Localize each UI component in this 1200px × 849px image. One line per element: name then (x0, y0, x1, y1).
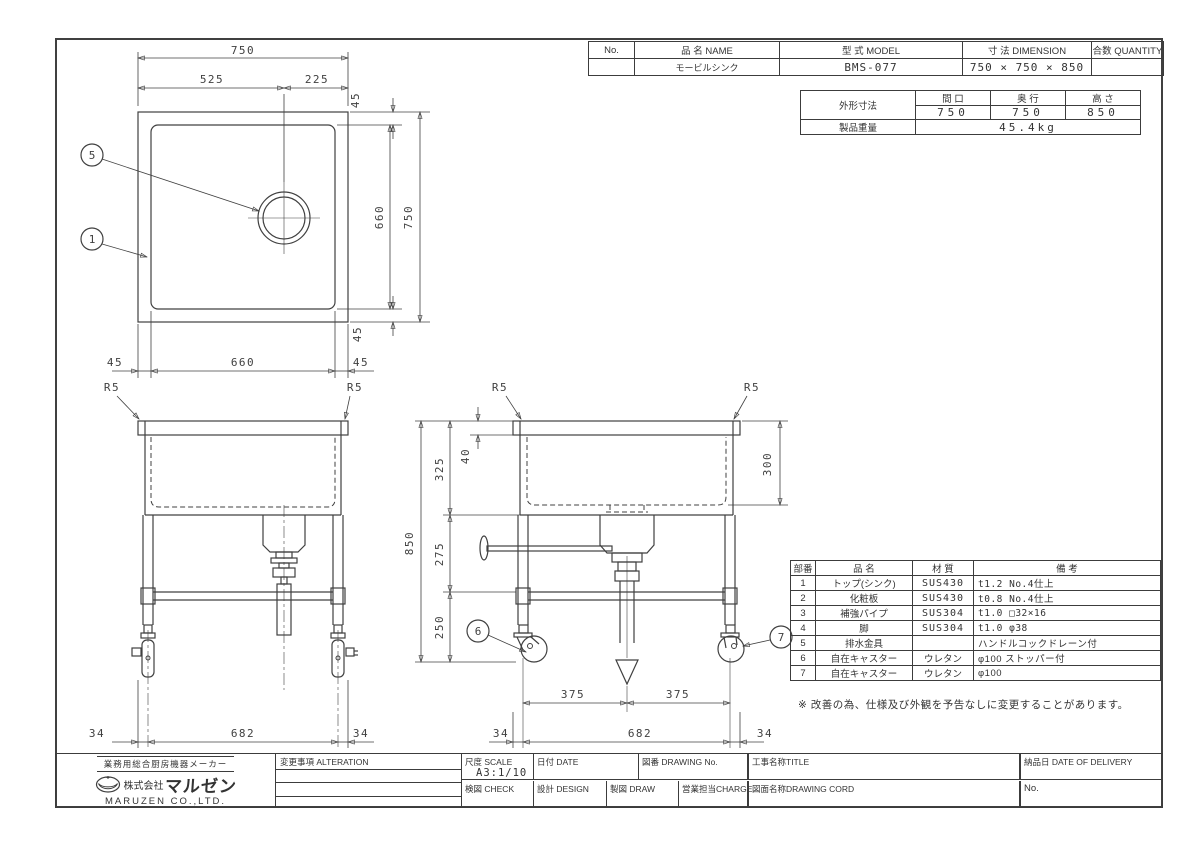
part-no: 6 (791, 651, 816, 666)
header-col-dimension: 寸 法 DIMENSION (963, 42, 1092, 59)
dim-plan-width-left: 525 (200, 73, 224, 86)
front-view: 34 682 34 R5 R5 (89, 381, 374, 748)
part-material: SUS304 (913, 621, 974, 636)
dim-plan-width-total: 750 (231, 44, 255, 57)
caster-right-wheel (718, 636, 744, 662)
company-name-en: MARUZEN CO.,LTD. (56, 796, 275, 807)
design-label: 設計 DESIGN (537, 783, 589, 795)
part-no: 7 (791, 666, 816, 681)
parts-row: 7 自在キャスター ウレタン φ100 (791, 666, 1161, 681)
company-logotype: マルゼン (164, 772, 238, 797)
drawing-cord-label: 図面名称DRAWING CORD (752, 783, 854, 795)
alteration-row (276, 797, 461, 810)
title-label: 工事名称TITLE (752, 756, 809, 768)
part-name: 化粧板 (816, 591, 913, 606)
parts-row: 2 化粧板 SUS430 t0.8 No.4仕上 (791, 591, 1161, 606)
parts-col-no: 部番 (791, 561, 816, 576)
sheet-frame (56, 39, 1162, 807)
dim-plan-inset-bottom: 45 (351, 326, 364, 342)
delivery-label: 納品日 DATE OF DELIVERY (1024, 756, 1132, 768)
part-name: トップ(シンク) (816, 576, 913, 591)
company-cell: 業務用総合厨房機器メーカー 株式会社 マルゼン MARUZEN CO.,LTD. (56, 754, 276, 807)
design-cell: 設計 DESIGN (534, 781, 607, 807)
draw-label: 製図 DRAW (610, 783, 655, 795)
parts-row: 6 自在キャスター ウレタン φ100 ストッパー付 (791, 651, 1161, 666)
part-no: 3 (791, 606, 816, 621)
model-number: BMS-077 (780, 59, 963, 76)
spec-col-width: 間 口 (916, 91, 991, 106)
radius-label-side-right: R5 (744, 381, 760, 394)
parts-row: 4 脚 SUS304 t1.0 φ38 (791, 621, 1161, 636)
dim-side-bottom-right: 34 (757, 727, 773, 740)
header-table: No. 品 名 NAME 型 式 MODEL 寸 法 DIMENSION 合数 … (588, 41, 1164, 76)
parts-row: 5 排水金具 ハンドルコックドレーン付 (791, 636, 1161, 651)
dim-side-bottom-left: 34 (493, 727, 509, 740)
spec-table: 外形寸法 間 口 奥 行 高 さ 750 750 850 製品重量 45.4kg (800, 90, 1141, 135)
overall-dimension: 750 × 750 × 850 (963, 59, 1092, 76)
maker-tagline: 業務用総合厨房機器メーカー (97, 756, 235, 772)
parts-row: 3 補強パイプ SUS304 t1.0 □32×16 (791, 606, 1161, 621)
product-name: モービルシンク (635, 59, 780, 76)
weight-value: 45.4kg (916, 120, 1141, 135)
check-label: 検図 CHECK (465, 783, 514, 795)
part-note: t1.2 No.4仕上 (974, 576, 1161, 591)
part-name: 補強パイプ (816, 606, 913, 621)
dim-front-bottom-left: 34 (89, 727, 105, 740)
part-no: 2 (791, 591, 816, 606)
parts-col-material: 材 質 (913, 561, 974, 576)
date-label: 日付 DATE (537, 756, 578, 768)
dim-side-span-right: 375 (666, 688, 690, 701)
spec-height-value: 850 (1066, 106, 1141, 120)
dim-side-bottom-center: 682 (628, 727, 652, 740)
part-material (913, 636, 974, 651)
alteration-cell: 変更事項 ALTERATION (276, 754, 462, 807)
dim-plan-inset-top: 45 (349, 92, 362, 108)
dim-side-height-total: 850 (403, 531, 416, 555)
header-col-model: 型 式 MODEL (780, 42, 963, 59)
balloon-7-label: 7 (778, 631, 785, 644)
spec-width-value: 750 (916, 106, 991, 120)
dim-plan-bottom-left: 45 (107, 356, 123, 369)
weight-label: 製品重量 (801, 120, 916, 135)
plan-view: 750 525 225 45 660 750 45 45 660 45 5 (81, 44, 430, 378)
part-material: ウレタン (913, 651, 974, 666)
part-material: ウレタン (913, 666, 974, 681)
part-no: 5 (791, 636, 816, 651)
part-note: ハンドルコックドレーン付 (974, 636, 1161, 651)
dim-front-bottom-right: 34 (353, 727, 369, 740)
title-block: 業務用総合厨房機器メーカー 株式会社 マルゼン MARUZEN CO.,LTD.… (55, 753, 1163, 808)
dim-side-seg2: 275 (433, 542, 446, 566)
radius-label-side-left: R5 (492, 381, 508, 394)
maruzen-logo-icon (95, 775, 121, 793)
dim-side-seg1: 325 (433, 457, 446, 481)
dim-plan-height-inner: 660 (373, 205, 386, 229)
part-no: 4 (791, 621, 816, 636)
flow-arrow (616, 660, 638, 684)
part-name: 排水金具 (816, 636, 913, 651)
no-cell: No. (1019, 781, 1163, 807)
parts-col-note: 備 考 (974, 561, 1161, 576)
charge-cell: 営業担当CHARGE (679, 781, 747, 807)
part-note: t1.0 □32×16 (974, 606, 1161, 621)
part-name: 自在キャスター (816, 666, 913, 681)
balloon-1-label: 1 (89, 233, 96, 246)
drawing-no-label: 図番 DRAWING No. (642, 756, 718, 768)
outer-dim-label: 外形寸法 (801, 91, 916, 120)
balloon-6-label: 6 (475, 625, 482, 638)
balloon-5-label: 5 (89, 149, 96, 162)
drawing-no-cell: 図番 DRAWING No. (639, 754, 747, 780)
parts-table: 部番 品 名 材 質 備 考 1 トップ(シンク) SUS430 t1.2 No… (790, 560, 1161, 681)
charge-label: 営業担当CHARGE (682, 783, 752, 795)
part-note: t0.8 No.4仕上 (974, 591, 1161, 606)
company-prefix: 株式会社 (124, 777, 164, 792)
alteration-row (276, 783, 461, 797)
part-note: t1.0 φ38 (974, 621, 1161, 636)
draw-cell: 製図 DRAW (607, 781, 679, 807)
scale-value: A3:1/10 (476, 767, 527, 779)
header-col-quantity: 合数 QUANTITY (1092, 42, 1164, 59)
dim-side-seg3: 250 (433, 615, 446, 639)
dim-front-bottom-center: 682 (231, 727, 255, 740)
part-no: 1 (791, 576, 816, 591)
spec-col-depth: 奥 行 (991, 91, 1066, 106)
radius-label-front-left: R5 (104, 381, 120, 394)
spec-col-height: 高 さ (1066, 91, 1141, 106)
no-label: No. (1024, 783, 1039, 794)
alteration-label: 変更事項 ALTERATION (276, 754, 461, 770)
dim-side-depth: 300 (761, 452, 774, 476)
quantity-value (1092, 59, 1164, 76)
spec-depth-value: 750 (991, 106, 1066, 120)
part-note: φ100 (974, 666, 1161, 681)
part-material: SUS430 (913, 576, 974, 591)
delivery-cell: 納品日 DATE OF DELIVERY (1019, 754, 1163, 780)
header-col-no: No. (589, 42, 635, 59)
disclaimer-note: ※ 改善の為、仕様及び外観を予告なしに変更することがあります。 (798, 697, 1129, 712)
check-cell: 検図 CHECK (462, 781, 534, 807)
side-view: 6 7 40 325 275 250 850 300 375 375 (403, 381, 792, 748)
part-name: 自在キャスター (816, 651, 913, 666)
dim-plan-bottom-inner: 660 (231, 356, 255, 369)
scale-cell: 尺度 SCALE A3:1/10 (462, 754, 534, 780)
dim-side-rim: 40 (459, 448, 472, 464)
dim-plan-bottom-right: 45 (353, 356, 369, 369)
drain-bowl-side (600, 515, 654, 553)
date-cell: 日付 DATE (534, 754, 639, 780)
alteration-row (276, 770, 461, 784)
dim-plan-width-right: 225 (305, 73, 329, 86)
drain-handle-rod (487, 546, 612, 551)
title-cell: 工事名称TITLE (747, 754, 1019, 780)
drawing-cord-cell: 図面名称DRAWING CORD (747, 781, 1019, 807)
part-material: SUS430 (913, 591, 974, 606)
part-note: φ100 ストッパー付 (974, 651, 1161, 666)
dim-side-span-left: 375 (561, 688, 585, 701)
parts-row: 1 トップ(シンク) SUS430 t1.2 No.4仕上 (791, 576, 1161, 591)
dim-plan-height-total: 750 (402, 205, 415, 229)
part-name: 脚 (816, 621, 913, 636)
parts-col-name: 品 名 (816, 561, 913, 576)
part-material: SUS304 (913, 606, 974, 621)
header-col-name: 品 名 NAME (635, 42, 780, 59)
radius-label-front-right: R5 (347, 381, 363, 394)
header-no-value (589, 59, 635, 76)
